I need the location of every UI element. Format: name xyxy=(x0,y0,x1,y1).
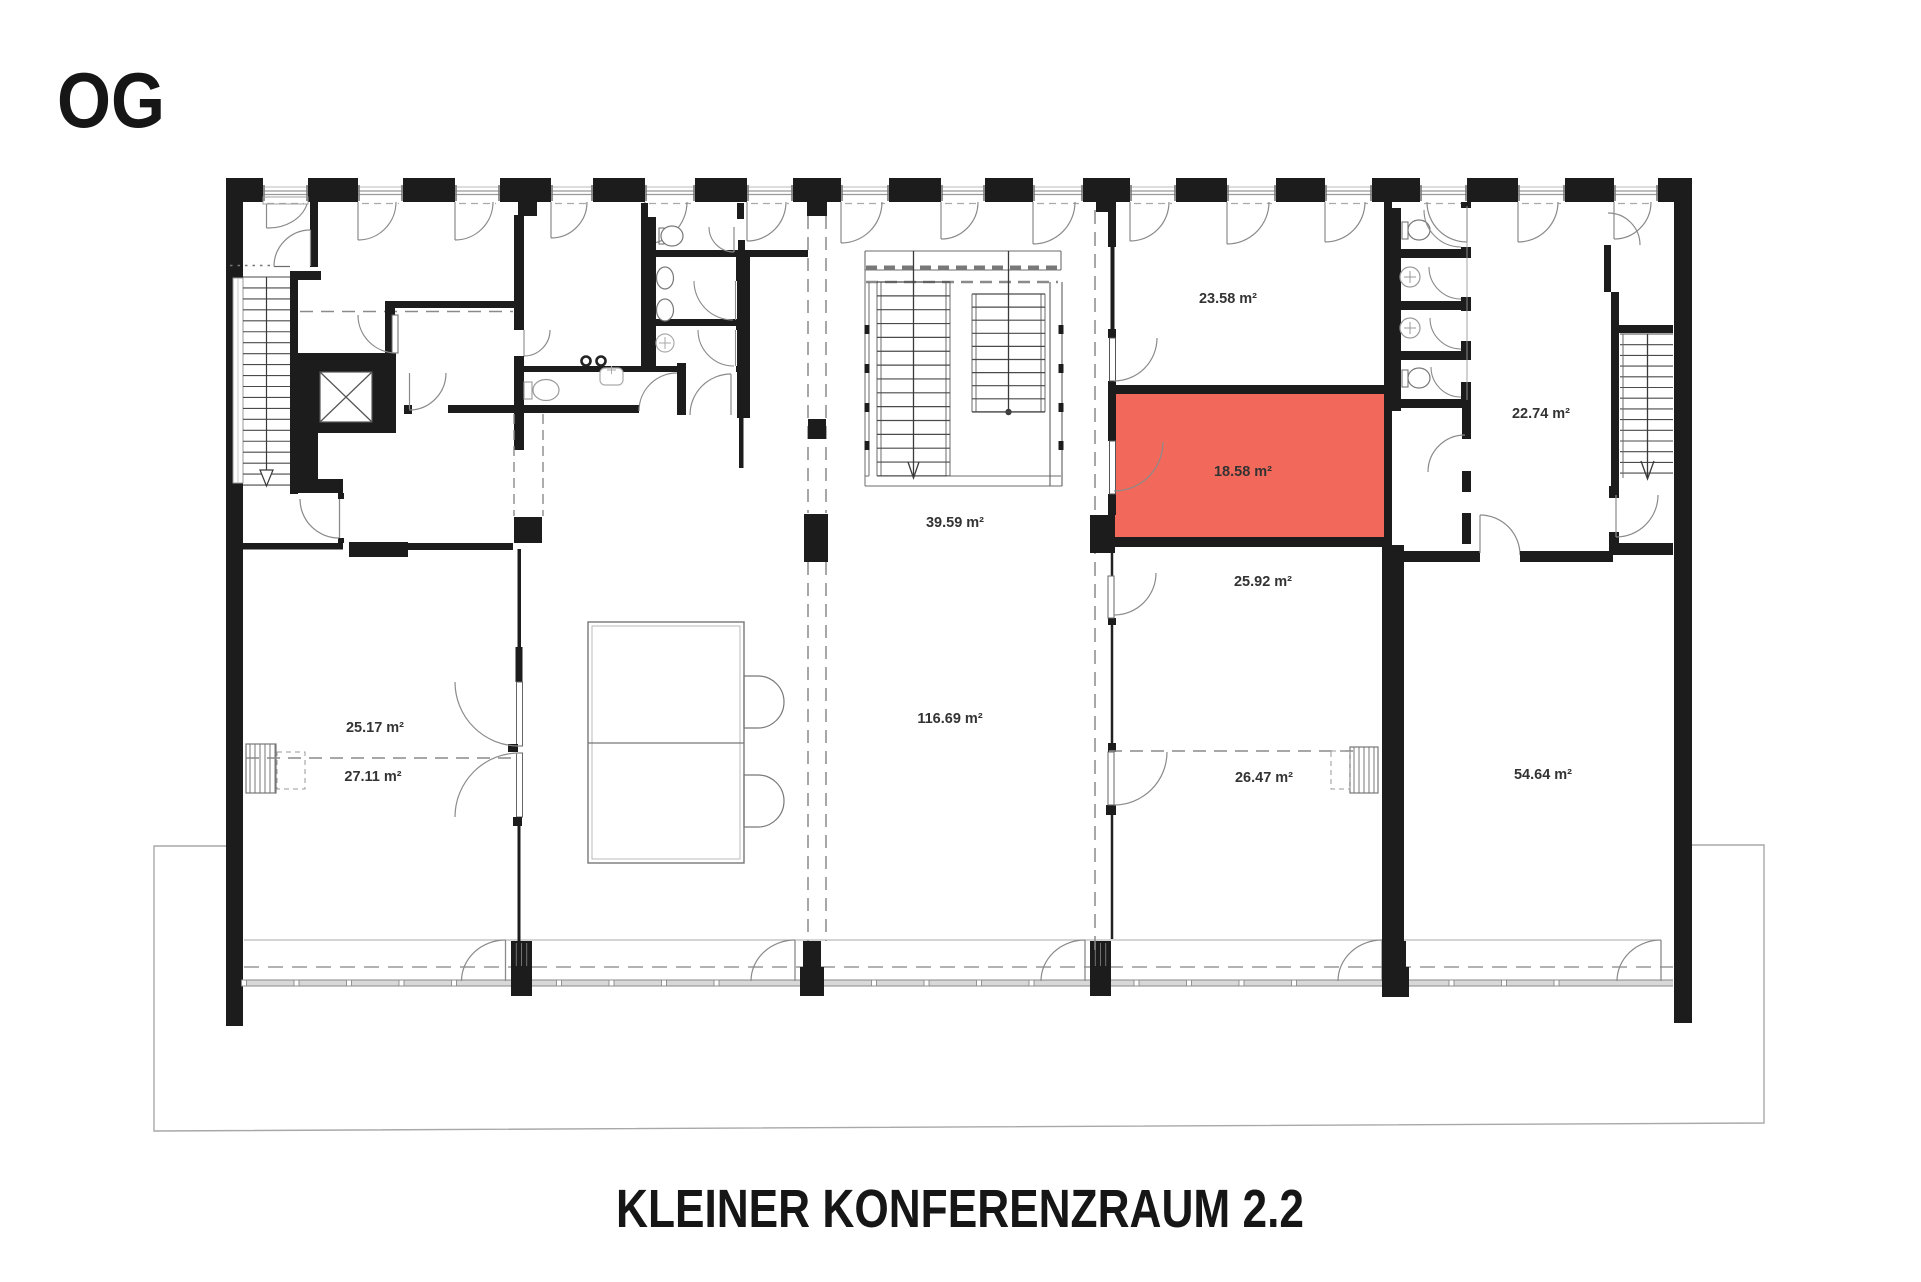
svg-text:39.59 m²: 39.59 m² xyxy=(926,515,984,531)
svg-text:116.69 m²: 116.69 m² xyxy=(917,711,982,727)
svg-text:54.64 m²: 54.64 m² xyxy=(1514,767,1572,783)
svg-text:25.92 m²: 25.92 m² xyxy=(1234,574,1292,590)
svg-text:25.17 m²: 25.17 m² xyxy=(346,720,404,736)
svg-text:OG: OG xyxy=(57,56,165,144)
svg-text:18.58 m²: 18.58 m² xyxy=(1214,464,1272,480)
svg-text:23.58 m²: 23.58 m² xyxy=(1199,291,1257,307)
svg-text:26.47 m²: 26.47 m² xyxy=(1235,770,1293,786)
svg-text:22.74 m²: 22.74 m² xyxy=(1512,406,1570,422)
svg-text:27.11 m²: 27.11 m² xyxy=(344,769,401,785)
svg-text:KLEINER KONFERENZRAUM 2.2: KLEINER KONFERENZRAUM 2.2 xyxy=(616,1179,1304,1239)
